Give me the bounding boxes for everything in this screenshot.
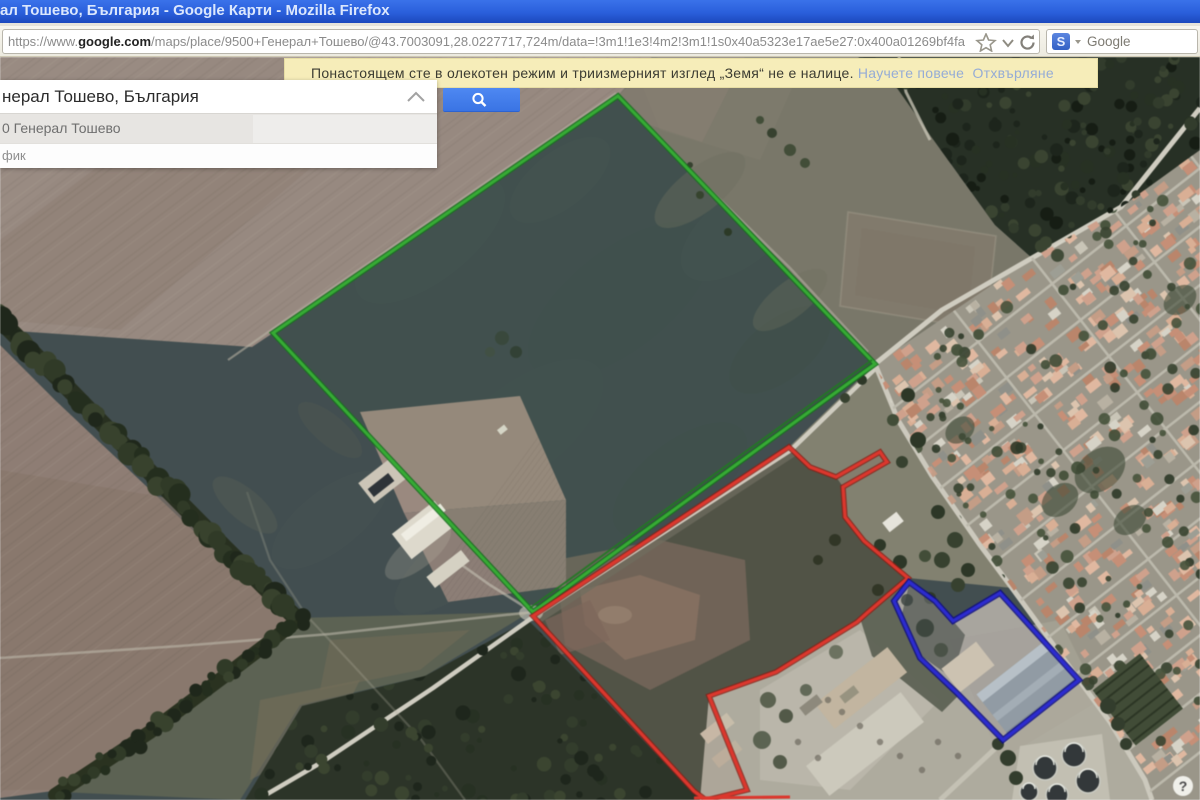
svg-text:?: ? [1179, 778, 1188, 794]
